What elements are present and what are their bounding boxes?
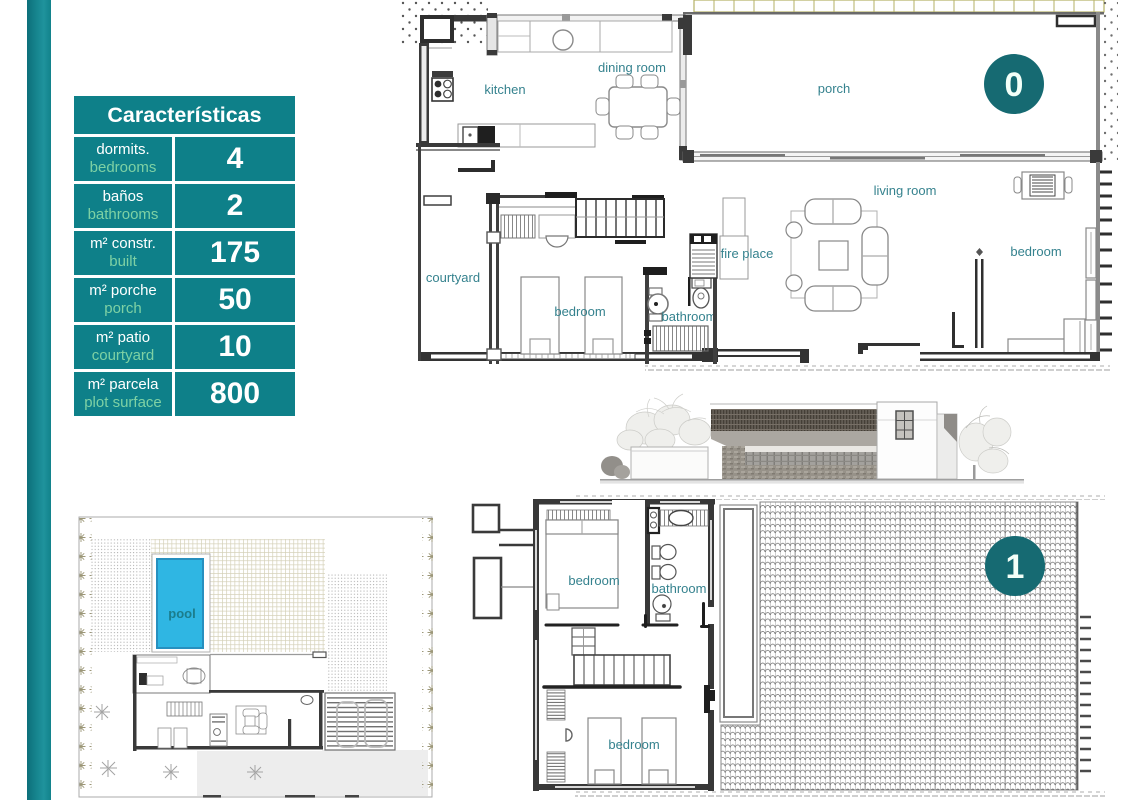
svg-text:pool: pool — [168, 606, 195, 621]
svg-text:1: 1 — [1006, 548, 1025, 586]
svg-text:bedroom: bedroom — [568, 573, 619, 588]
svg-text:fire place: fire place — [721, 246, 774, 261]
svg-text:bathroom: bathroom — [662, 309, 717, 324]
svg-text:porch: porch — [818, 81, 851, 96]
svg-text:bedroom: bedroom — [554, 304, 605, 319]
svg-text:dining room: dining room — [598, 60, 666, 75]
svg-text:bedroom: bedroom — [608, 737, 659, 752]
svg-text:0: 0 — [1005, 66, 1024, 104]
svg-text:bedroom: bedroom — [1010, 244, 1061, 259]
svg-text:courtyard: courtyard — [426, 270, 480, 285]
svg-text:kitchen: kitchen — [484, 82, 525, 97]
svg-text:bathroom: bathroom — [652, 581, 707, 596]
svg-text:living room: living room — [874, 183, 937, 198]
